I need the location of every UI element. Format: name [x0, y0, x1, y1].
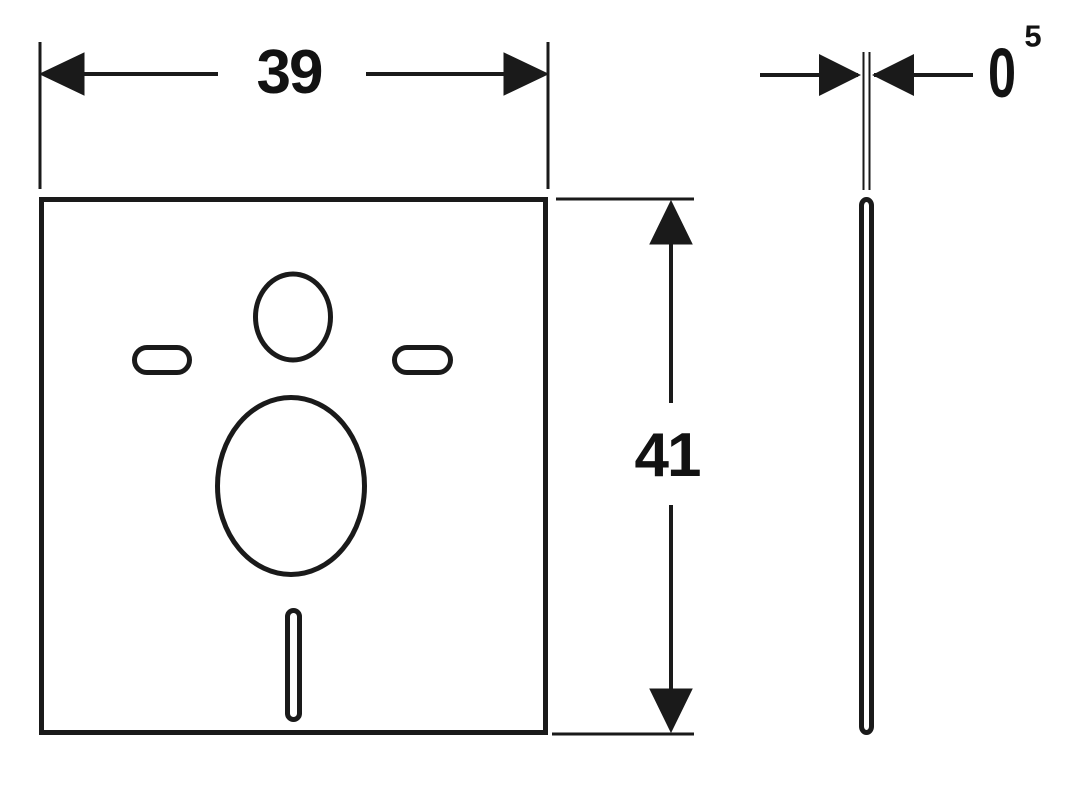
height-arrowhead-bottom-icon — [650, 689, 692, 732]
width-dimension-label: 39 — [257, 42, 322, 104]
thickness-arrowhead-left-icon — [819, 54, 861, 96]
thickness-dimension-label: 0 — [988, 38, 1016, 108]
width-arrowhead-right-icon — [504, 53, 548, 95]
center-circle-cutout — [218, 398, 365, 575]
thickness-dimension-superscript: 5 — [1024, 21, 1041, 52]
top-oval-cutout — [256, 274, 331, 360]
height-dimension-label: 41 — [635, 425, 700, 487]
side-view — [760, 52, 973, 733]
height-arrowhead-top-icon — [650, 201, 692, 244]
technical-drawing-page: 39 41 0 5 — [0, 0, 1065, 807]
side-view-plate-outline — [862, 200, 872, 733]
width-arrowhead-left-icon — [40, 53, 84, 95]
bottom-slot-cutout — [288, 611, 300, 720]
thickness-arrowhead-right-icon — [872, 54, 914, 96]
technical-drawing-canvas — [0, 0, 1065, 807]
left-pill-cutout — [135, 348, 190, 373]
front-view — [42, 200, 546, 733]
right-pill-cutout — [395, 348, 451, 373]
